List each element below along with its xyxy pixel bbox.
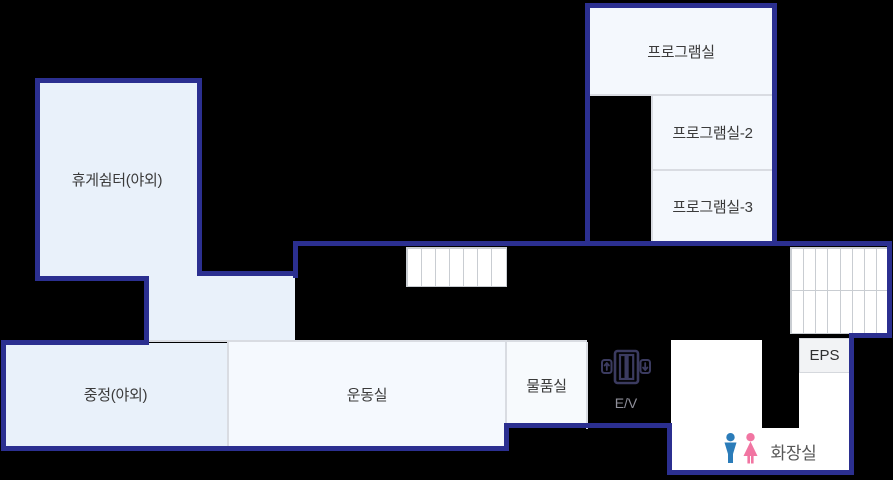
stairs-middle: [406, 247, 507, 287]
wall-segment: [1, 446, 509, 451]
wall-segment: [772, 3, 777, 246]
stair-step: [815, 248, 828, 292]
stair-step: [449, 248, 464, 287]
elevator-label: E/V: [615, 395, 638, 411]
room-label-rest-shelter: 휴게쉼터(야외): [37, 81, 197, 277]
room-label-courtyard: 중정(야외): [4, 343, 227, 446]
room-label-program-3: 프로그램실-3: [653, 171, 772, 241]
exercise-room-label: 운동실: [347, 384, 388, 405]
wall-segment: [667, 423, 672, 475]
restroom-block: 화장실: [680, 434, 860, 468]
stair-step: [491, 248, 506, 287]
storage-room-label: 물품실: [526, 375, 567, 396]
stair-step: [864, 290, 877, 334]
stair-step: [477, 248, 492, 287]
stair-step: [827, 290, 840, 334]
room-label-exercise: 운동실: [229, 342, 505, 446]
restroom-label: 화장실: [770, 439, 816, 464]
program-room-label: 프로그램실: [647, 41, 715, 62]
program-room-3-label: 프로그램실-3: [672, 196, 752, 217]
room-label-storage: 물품실: [507, 342, 586, 428]
stair-step: [463, 248, 478, 287]
eps-label: EPS: [809, 347, 839, 364]
room-divider: [586, 342, 588, 429]
corridor-area: [146, 273, 295, 341]
wall-segment: [667, 470, 854, 475]
stair-step: [791, 290, 804, 334]
stair-step: [840, 290, 853, 334]
stair-step: [791, 248, 804, 292]
wall-segment: [197, 271, 298, 276]
wall-segment: [849, 333, 892, 338]
stair-step: [803, 290, 816, 334]
stair-step: [852, 290, 865, 334]
elevator-icon: [600, 349, 652, 392]
stair-step: [827, 248, 840, 292]
stair-step: [435, 248, 450, 287]
stairs-right: [790, 247, 890, 334]
male-icon: [723, 433, 738, 469]
stair-step: [852, 248, 865, 292]
room-label-program-2: 프로그램실-2: [653, 95, 772, 170]
courtyard-label: 중정(야외): [84, 384, 147, 405]
stair-step: [407, 248, 422, 287]
program-room-2-label: 프로그램실-2: [672, 122, 752, 143]
female-icon: [742, 433, 759, 469]
wall-segment: [144, 276, 149, 345]
wall-segment: [197, 78, 202, 276]
stair-step: [815, 290, 828, 334]
rest-shelter-label: 휴게쉼터(야외): [72, 169, 162, 190]
floor-plan: EPS 프로그램실 프로그램실-2 프로그램실-3 휴게쉼터(야외): [0, 0, 893, 480]
stair-step: [840, 248, 853, 292]
wall-segment: [293, 241, 892, 246]
stair-step: [803, 248, 816, 292]
stair-step: [421, 248, 436, 287]
stair-step: [864, 248, 877, 292]
elevator-block: E/V: [598, 349, 654, 411]
room-eps: EPS: [799, 338, 850, 373]
room-label-program: 프로그램실: [590, 7, 772, 95]
restroom-notch: [762, 340, 799, 428]
wall-segment: [887, 241, 892, 338]
